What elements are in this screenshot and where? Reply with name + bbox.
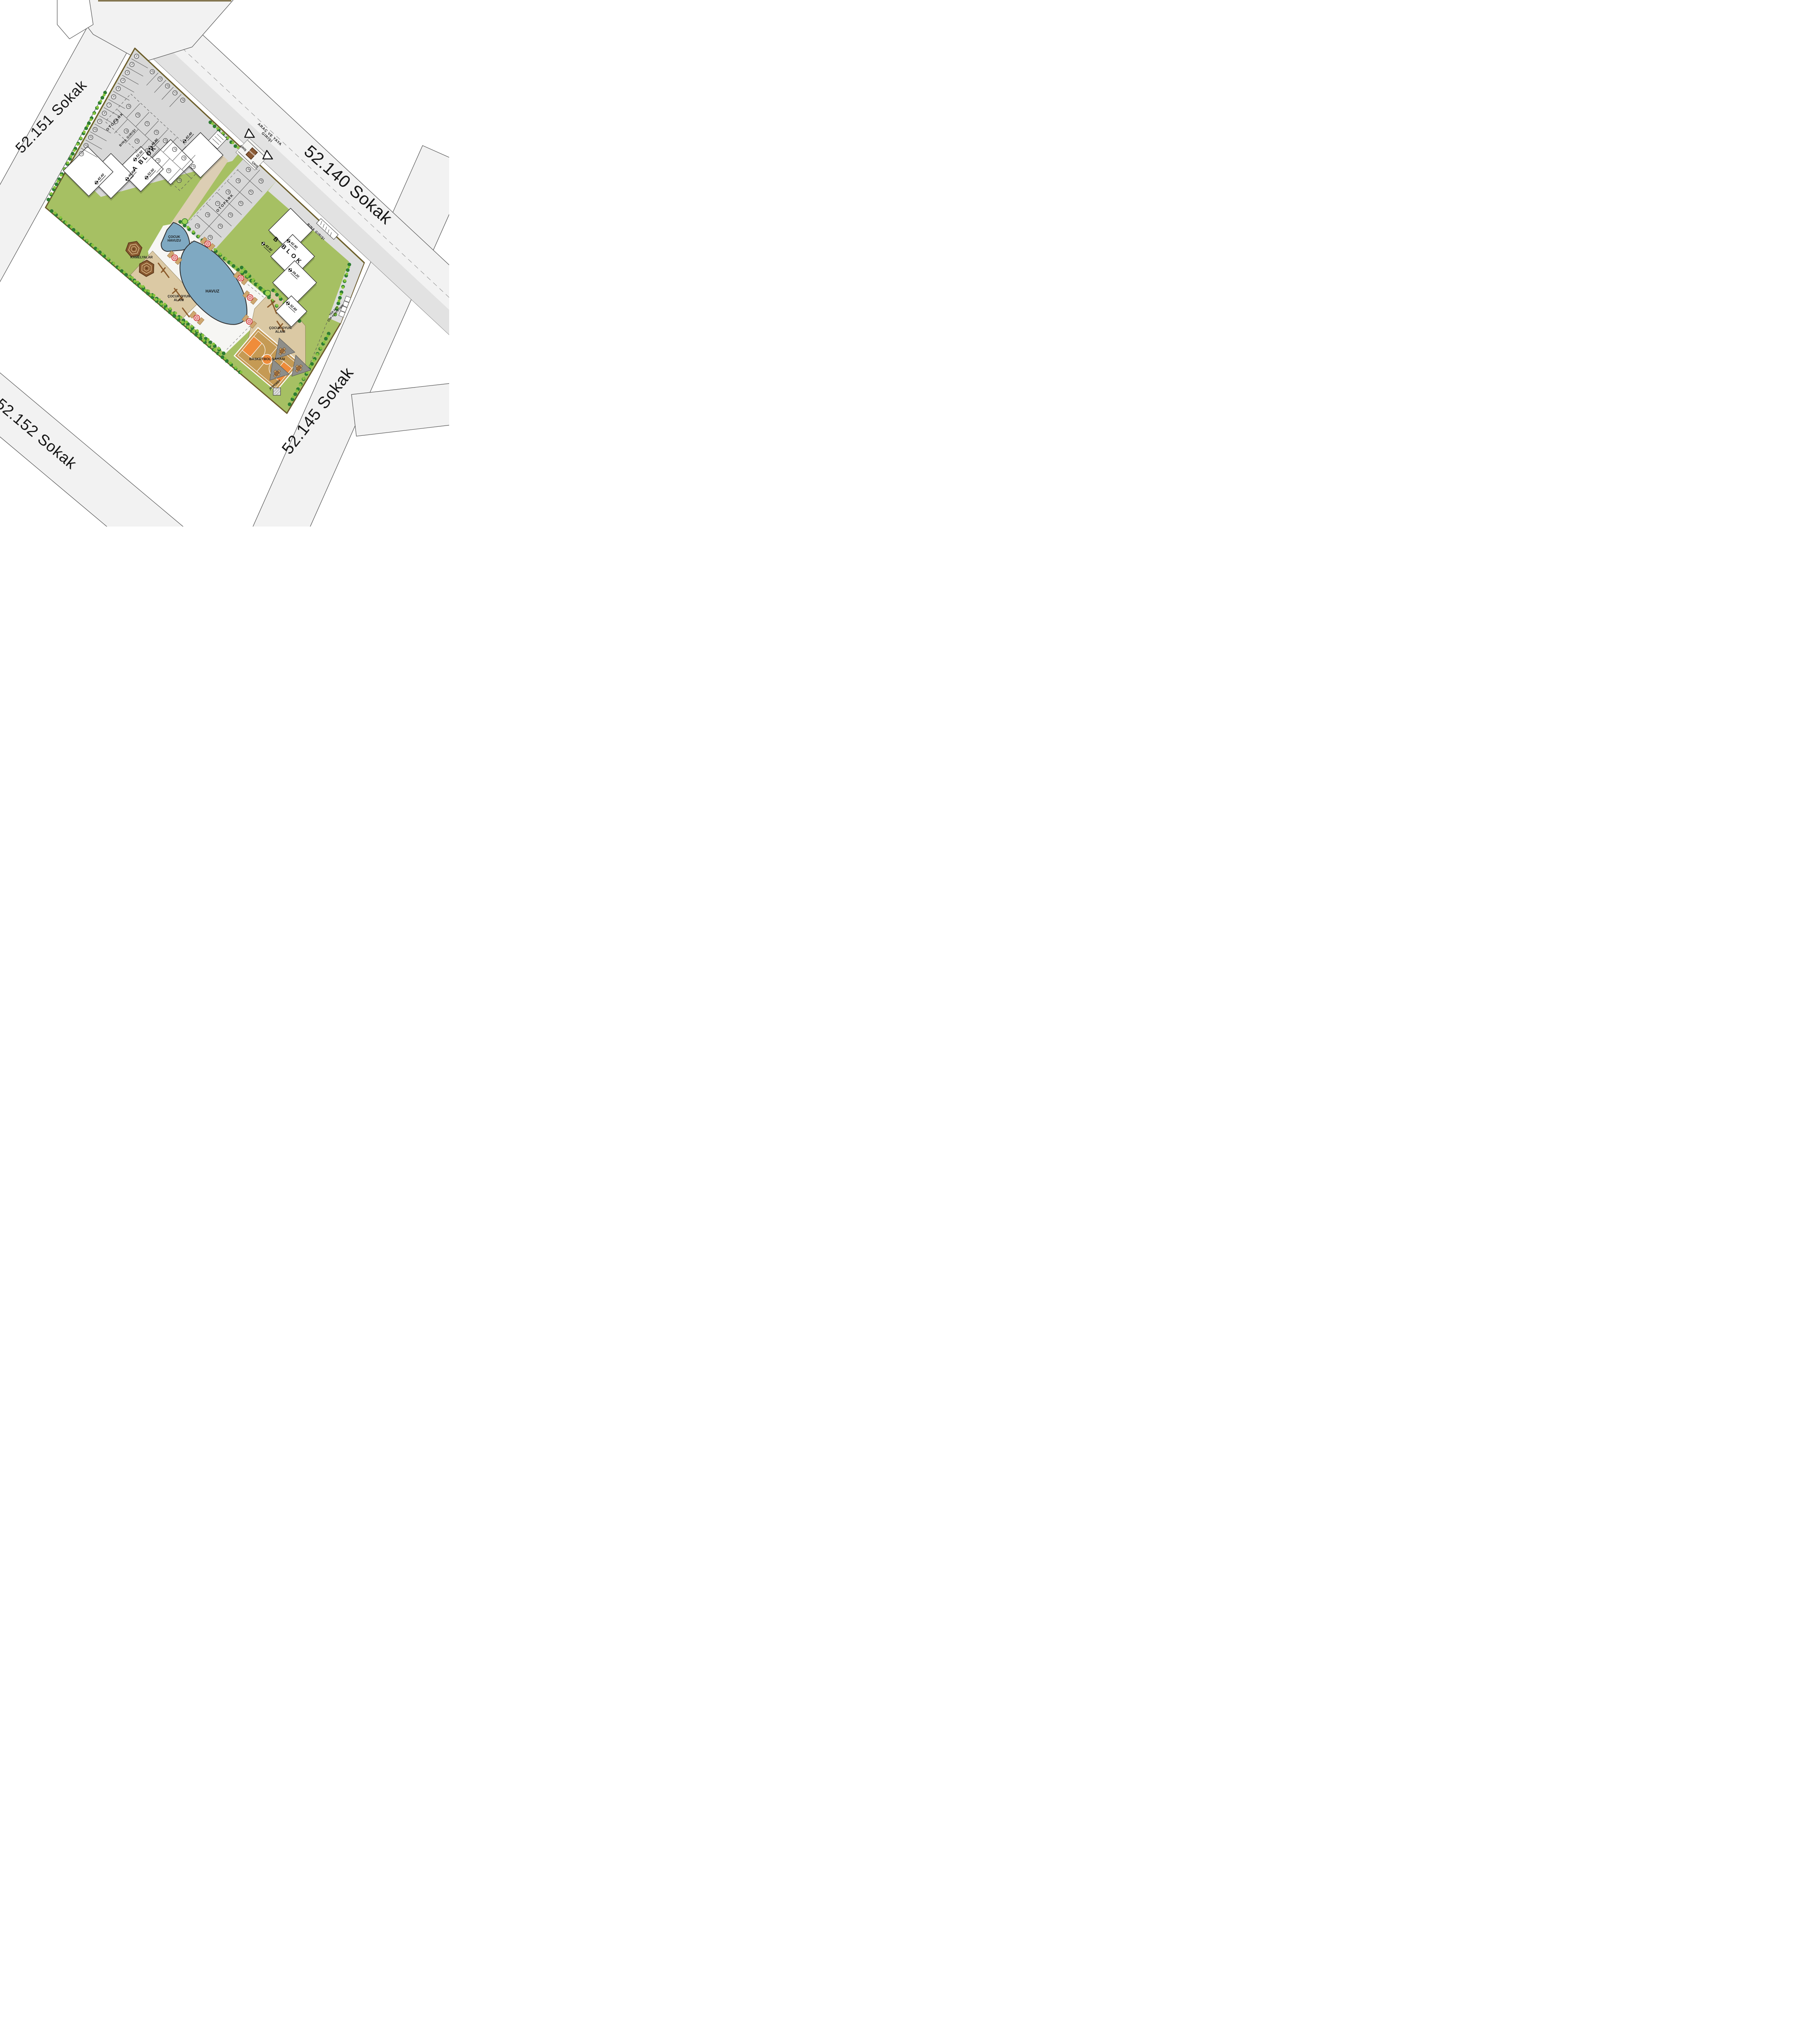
pool-label: HAVUZ — [206, 289, 219, 294]
site-plan: 52.151 Sokak 52.140 Sokak 52.145 Sokak 5… — [0, 0, 449, 527]
basketball-label: BASKETBOL SAHASI — [249, 357, 285, 361]
kids-pool-label: ÇOCUKHAVUZU — [168, 235, 181, 243]
playground-2-label: ÇOCUK OYUNALANI — [269, 327, 291, 334]
generator-box — [273, 388, 280, 395]
playground-1-label: ÇOCUK OYUNALANI — [168, 295, 190, 302]
gazebos-label: KAMELYALAR — [130, 256, 153, 260]
